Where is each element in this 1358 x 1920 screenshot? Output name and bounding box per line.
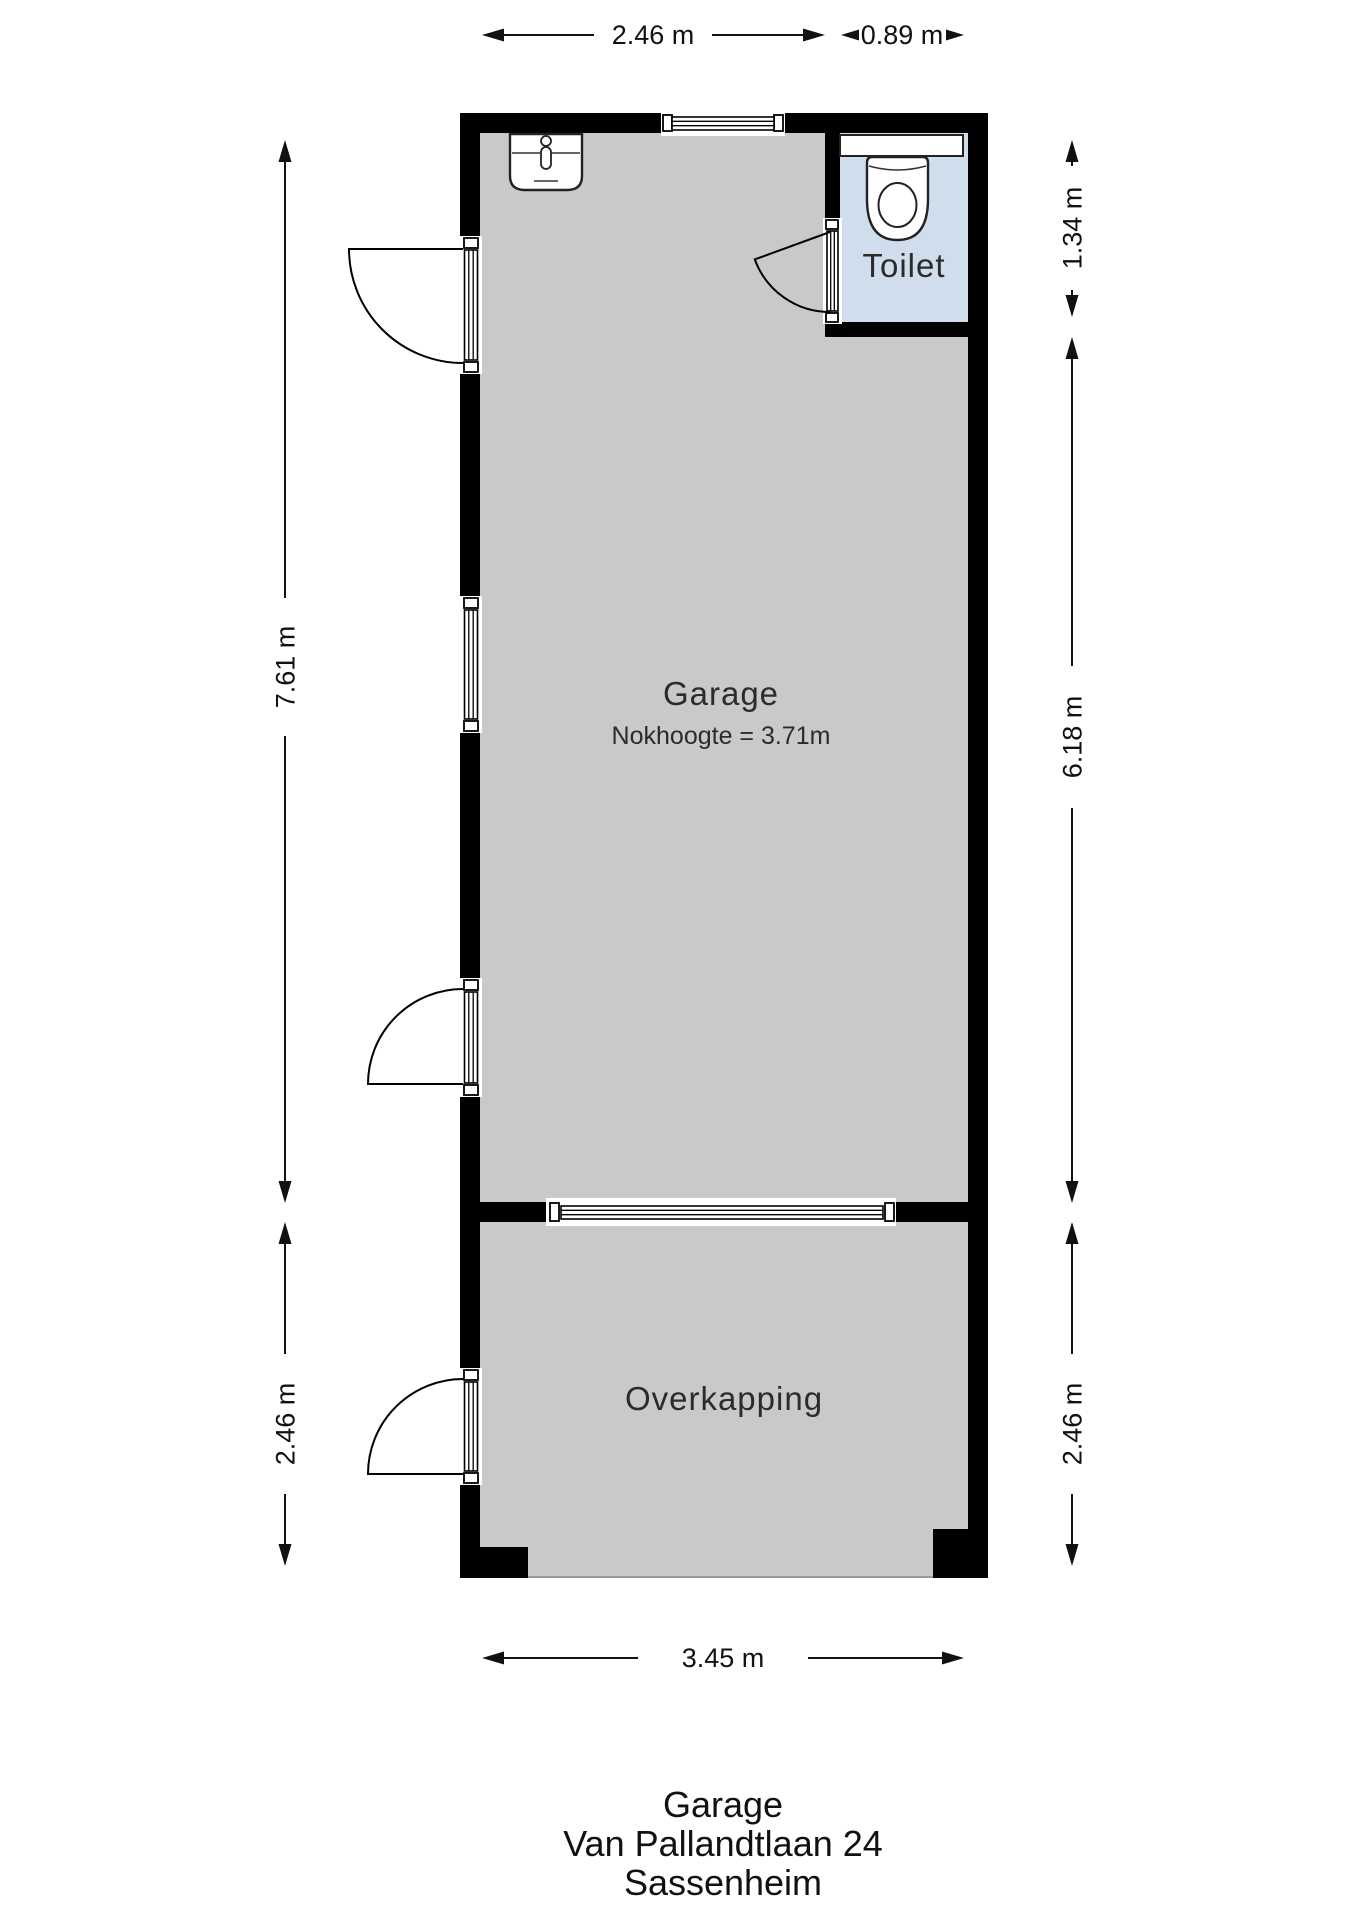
- svg-text:0.89 m: 0.89 m: [861, 20, 944, 50]
- svg-text:6.18 m: 6.18 m: [1058, 696, 1088, 779]
- dimension-right-overkapping-length: 2.46 m: [1058, 1222, 1088, 1566]
- toilet-cistern: [840, 135, 963, 156]
- plan-title-line1: Garage: [663, 1784, 783, 1825]
- door-swing-arc: [368, 989, 463, 1084]
- door-left-overkapping: [368, 1368, 482, 1485]
- toilet-label: Toilet: [862, 247, 945, 284]
- svg-text:2.46 m: 2.46 m: [271, 1383, 301, 1466]
- floorplan-canvas: Garage Nokhoogte = 3.71m Toilet Overkapp…: [0, 0, 1358, 1920]
- floorplan-page: Garage Nokhoogte = 3.71m Toilet Overkapp…: [0, 0, 1358, 1920]
- door-swing-arc: [349, 249, 463, 363]
- window-left: [458, 596, 482, 733]
- title-block: Garage Van Pallandtlaan 24 Sassenheim: [563, 1784, 883, 1903]
- floors: [480, 133, 968, 1578]
- dimension-bottom-width: 3.45 m: [482, 1643, 964, 1673]
- window-top: [661, 110, 785, 136]
- wall-bottom-left-post: [460, 1547, 528, 1578]
- door-left-top: [349, 236, 482, 374]
- opening-divider: [546, 1198, 896, 1226]
- dimension-right-garage-length: 6.18 m: [1058, 337, 1088, 1203]
- svg-text:1.34 m: 1.34 m: [1058, 187, 1088, 270]
- garage-note: Nokhoogte = 3.71m: [612, 722, 831, 750]
- svg-text:2.46 m: 2.46 m: [612, 20, 695, 50]
- svg-text:3.45 m: 3.45 m: [682, 1643, 765, 1673]
- dimension-left-overkapping-length: 2.46 m: [271, 1222, 301, 1566]
- plan-title-line3: Sassenheim: [624, 1862, 822, 1903]
- door-left-middle: [368, 978, 482, 1097]
- dimension-right-toilet-length: 1.34 m: [1058, 140, 1088, 317]
- overkapping-label: Overkapping: [625, 1380, 823, 1417]
- svg-text:7.61 m: 7.61 m: [271, 626, 301, 709]
- plan-title-line2: Van Pallandtlaan 24: [563, 1823, 883, 1864]
- wall-bottom-right-post: [933, 1529, 988, 1578]
- wall-right: [968, 113, 988, 1578]
- dimension-left-garage-length: 7.61 m: [271, 140, 301, 1203]
- wall-toilet-bottom: [825, 322, 968, 337]
- sink-fixture-icon: [510, 134, 582, 190]
- dimension-top-garage-width: 2.46 m: [482, 20, 825, 50]
- svg-text:2.46 m: 2.46 m: [1058, 1383, 1088, 1466]
- dimension-top-toilet-width: 0.89 m: [841, 20, 964, 50]
- garage-label: Garage: [663, 675, 779, 712]
- door-swing-arc: [368, 1379, 463, 1474]
